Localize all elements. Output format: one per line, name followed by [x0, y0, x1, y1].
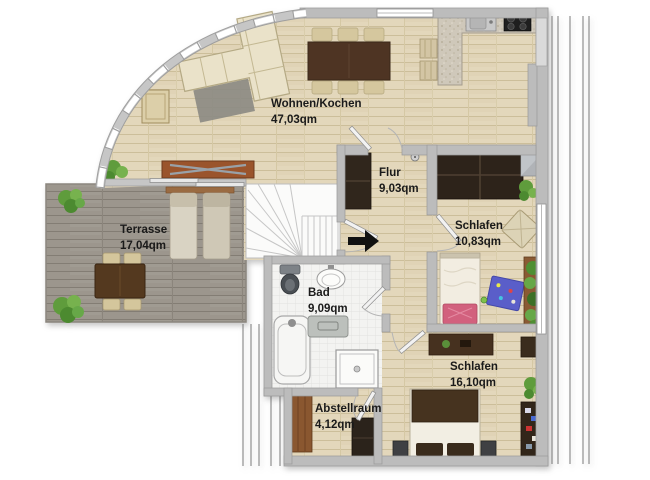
- room-label-bad: Bad 9,09qm: [308, 285, 348, 318]
- toilet: [280, 265, 300, 294]
- play-mat: [486, 276, 524, 311]
- sideboard: [162, 161, 254, 178]
- bathroom-cabinet: [308, 316, 348, 337]
- toy: [481, 297, 487, 303]
- floor-plan-page: Wohnen/Kochen 47,03qm Terrasse 17,04qm F…: [0, 0, 650, 480]
- room-area: 16,10qm: [450, 375, 498, 391]
- room-label-abstellraum: Abstellraum 4,12qm: [315, 401, 381, 434]
- wardrobe: [437, 151, 523, 199]
- room-area: 10,83qm: [455, 234, 503, 250]
- room-label-schlafen-gross: Schlafen 16,10qm: [450, 359, 498, 392]
- dining-chair: [364, 28, 384, 41]
- room-area: 17,04qm: [120, 238, 167, 254]
- tall-cabinet: [536, 18, 547, 66]
- window: [537, 204, 546, 334]
- room-area: 47,03qm: [271, 112, 362, 128]
- dining-chair: [338, 81, 358, 94]
- bathtub: [274, 316, 310, 384]
- terrace-chair: [103, 299, 120, 310]
- exterior-hatch-right: [552, 16, 589, 464]
- room-label-flur: Flur 9,03qm: [379, 165, 419, 198]
- terrace-chair: [103, 253, 120, 264]
- dining-chair: [338, 28, 358, 41]
- ottoman: [393, 441, 408, 457]
- room-name: Schlafen: [455, 218, 503, 234]
- room-area: 9,03qm: [379, 181, 419, 197]
- terrace-chair: [124, 299, 141, 310]
- room-name: Flur: [379, 165, 419, 181]
- dining-chair: [312, 81, 332, 94]
- room-name: Bad: [308, 285, 348, 301]
- room-label-wohnen-kochen: Wohnen/Kochen 47,03qm: [271, 96, 362, 129]
- dining-table: [308, 28, 390, 94]
- shower: [336, 350, 378, 388]
- room-name: Terrasse: [120, 222, 167, 238]
- room-area: 4,12qm: [315, 417, 381, 433]
- double-bed: [410, 389, 480, 458]
- desk: [429, 334, 493, 355]
- bed-pillow: [447, 443, 474, 456]
- room-label-schlafen-klein: Schlafen 10,83qm: [455, 218, 503, 251]
- room-name: Schlafen: [450, 359, 498, 375]
- bed-pillow: [416, 443, 443, 456]
- storage-cabinet: [292, 390, 312, 452]
- room-area: 9,09qm: [308, 301, 348, 317]
- dining-chair: [312, 28, 332, 41]
- dining-chair: [364, 81, 384, 94]
- single-bed: [440, 253, 480, 326]
- room-name: Abstellraum: [315, 401, 381, 417]
- room-name: Wohnen/Kochen: [271, 96, 362, 112]
- bed-throw: [412, 390, 478, 422]
- room-label-terrasse: Terrasse 17,04qm: [120, 222, 167, 255]
- staircase: [246, 184, 340, 258]
- ottoman: [481, 441, 496, 457]
- pink-blanket: [443, 304, 477, 324]
- side-table: [142, 90, 169, 123]
- window: [377, 9, 433, 17]
- hall-wardrobe: [345, 153, 371, 209]
